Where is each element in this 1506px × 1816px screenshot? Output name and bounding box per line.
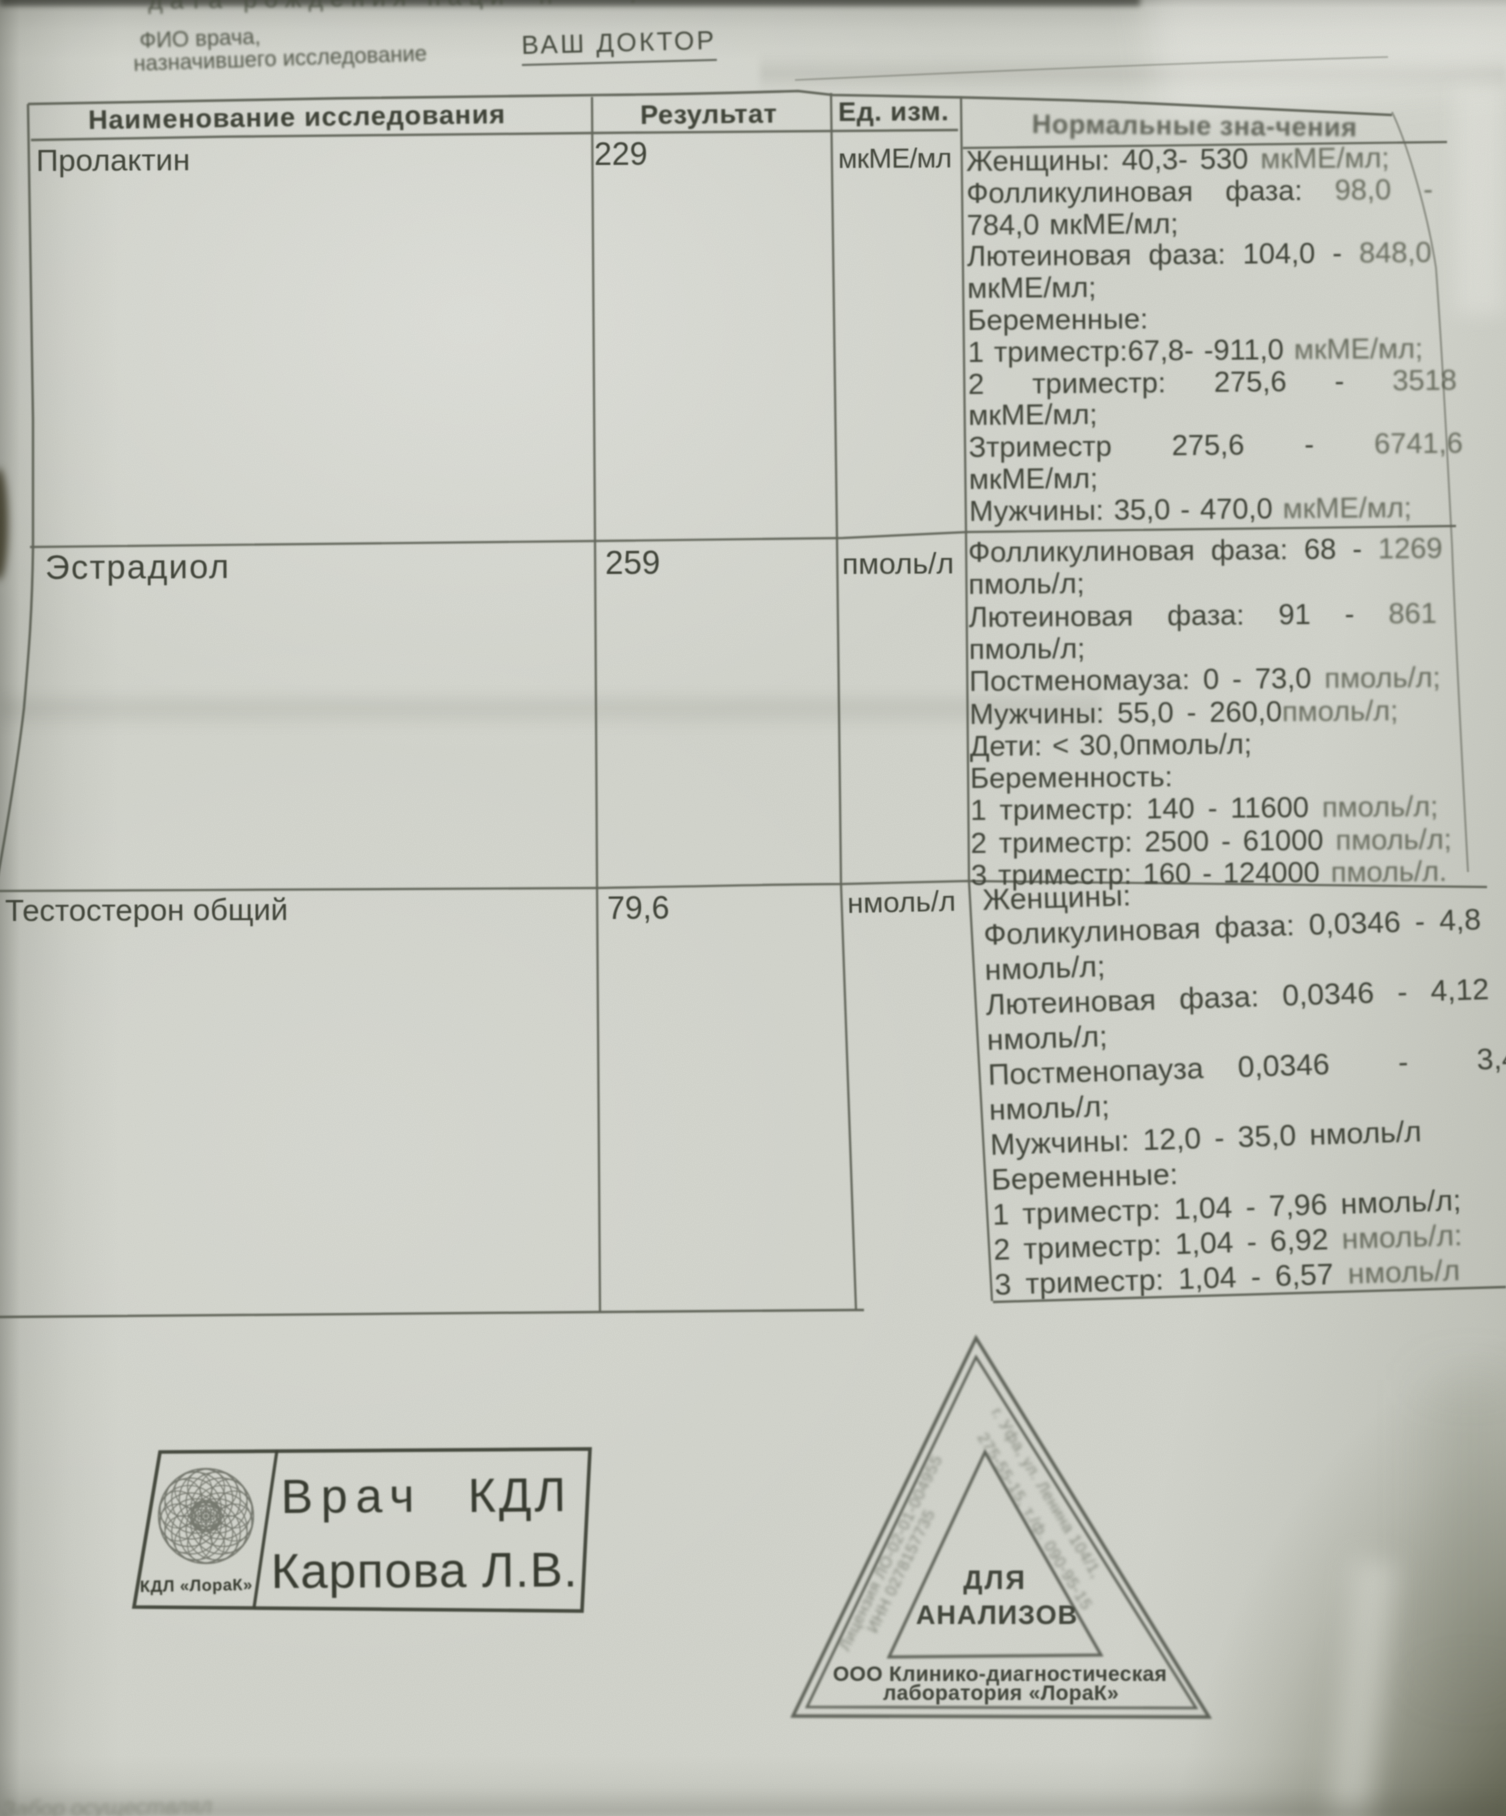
- svg-text:ООО Клинико-диагностическая: ООО Клинико-диагностическая: [833, 1663, 1167, 1686]
- svg-text:Врач: Врач: [281, 1470, 423, 1524]
- svg-text:лаборатория «ЛораК»: лаборатория «ЛораК»: [883, 1682, 1119, 1705]
- svg-text:ДЛЯ: ДЛЯ: [963, 1565, 1027, 1595]
- svg-text:Карпова Л.В.: Карпова Л.В.: [271, 1543, 579, 1599]
- svg-text:КДЛ «ЛораК»: КДЛ «ЛораК»: [140, 1576, 253, 1596]
- svg-text:ИНН 0278157735: ИНН 0278157735: [864, 1507, 938, 1636]
- svg-text:АНАЛИЗОВ: АНАЛИЗОВ: [916, 1600, 1078, 1630]
- svg-text:г. Уфа, ул. Ленина 104/1,: г. Уфа, ул. Ленина 104/1,: [988, 1405, 1105, 1581]
- svg-text:КДЛ: КДЛ: [468, 1469, 569, 1523]
- svg-text:275-55-15, т./ф. 090-95-15: 275-55-15, т./ф. 090-95-15: [974, 1430, 1095, 1613]
- svg-text:Лицензия ЛО-02-01-004955: Лицензия ЛО-02-01-004955: [836, 1453, 946, 1654]
